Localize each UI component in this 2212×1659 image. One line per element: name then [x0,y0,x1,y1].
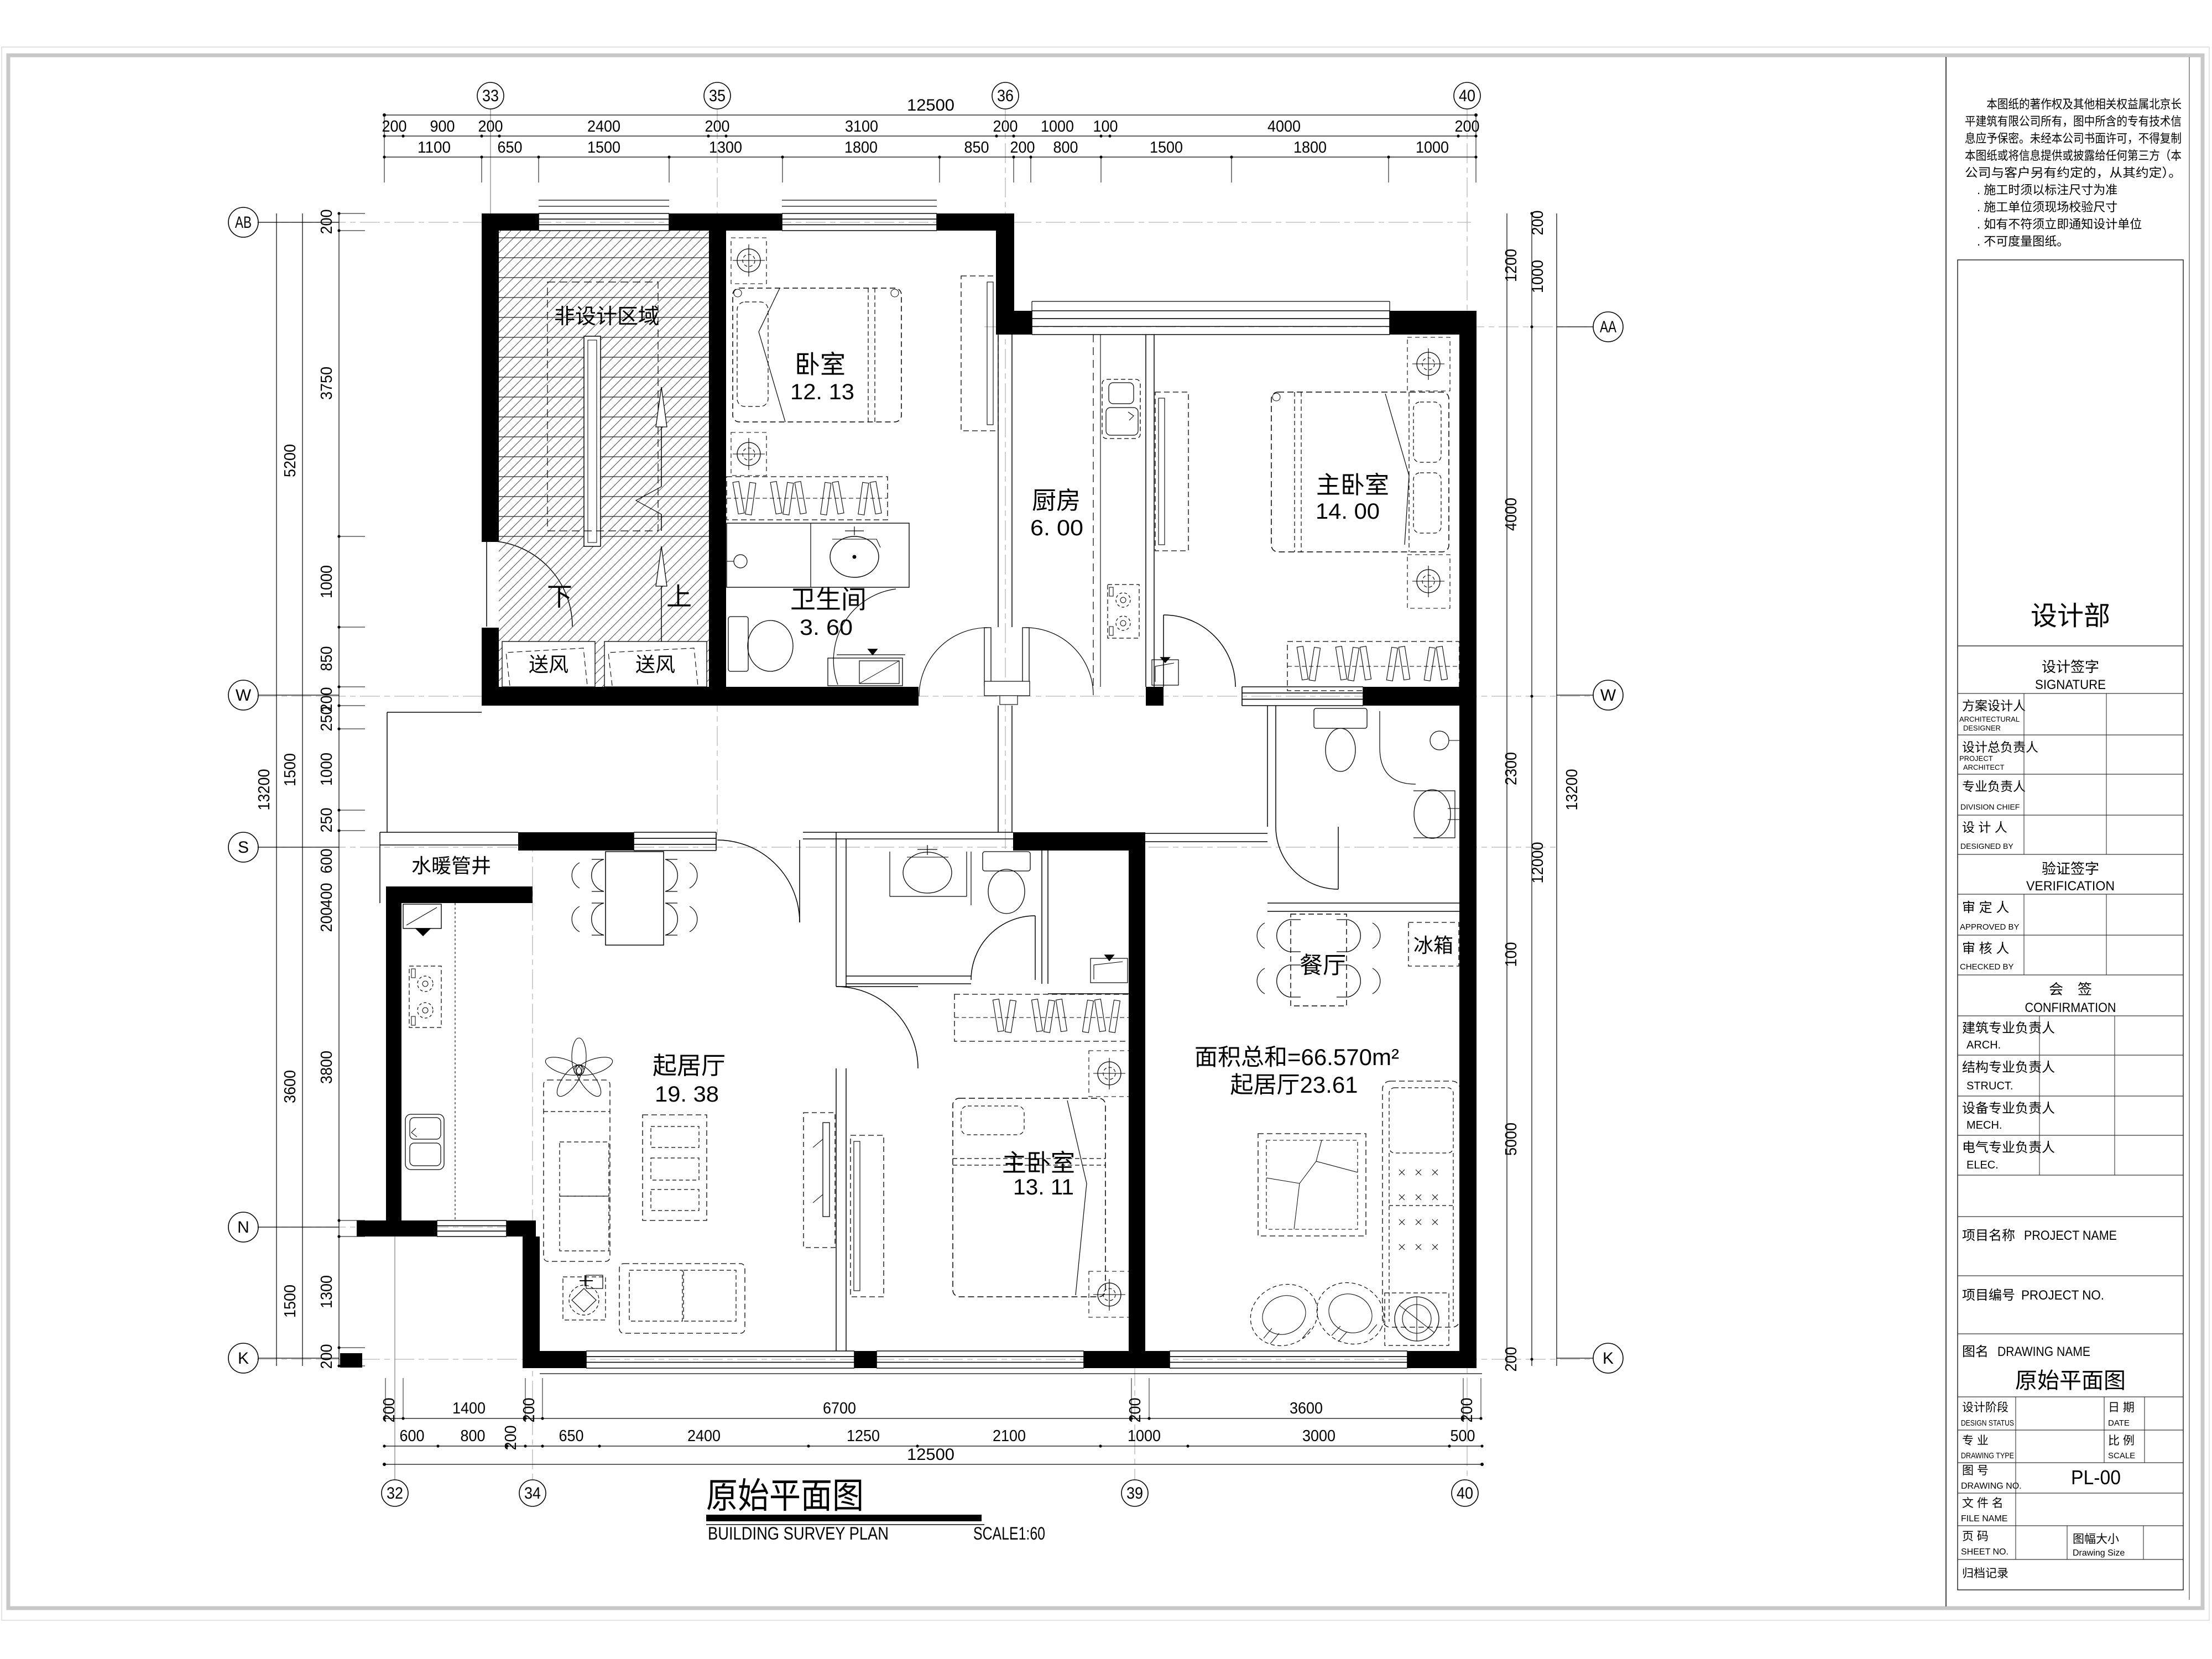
svg-text:主卧室: 主卧室 [1002,1150,1075,1177]
svg-text:. 不可度量图纸。: . 不可度量图纸。 [1965,234,2069,248]
svg-text:5000: 5000 [1503,1123,1520,1156]
svg-text:设备专业负责人: 设备专业负责人 [1962,1101,2055,1116]
svg-text:600: 600 [318,849,336,874]
svg-text:STRUCT.: STRUCT. [1966,1080,2013,1092]
svg-text:APPROVED BY: APPROVED BY [1960,922,2020,932]
svg-text:ARCHITECT: ARCHITECT [1963,763,2004,771]
svg-text:400: 400 [318,883,336,908]
svg-text:200: 200 [478,118,503,135]
svg-text:专业负责人: 专业负责人 [1962,779,2026,794]
svg-text:设计部: 设计部 [2031,602,2110,631]
svg-text:CHECKED BY: CHECKED BY [1960,962,2014,972]
svg-text:650: 650 [559,1427,584,1445]
svg-text:本图纸的著作权及其他相关权益属北京长: 本图纸的著作权及其他相关权益属北京长 [1965,97,2182,111]
svg-text:建筑专业负责人: 建筑专业负责人 [1962,1021,2055,1036]
svg-text:原始平面图: 原始平面图 [2015,1369,2126,1393]
svg-text:送风: 送风 [635,653,675,676]
svg-text:结构专业负责人: 结构专业负责人 [1962,1060,2055,1075]
svg-text:1800: 1800 [844,139,878,156]
svg-text:审 核 人: 审 核 人 [1962,941,2009,956]
svg-text:1200: 1200 [1503,249,1520,282]
svg-text:600: 600 [400,1427,425,1445]
svg-text:500: 500 [1451,1427,1475,1445]
svg-text:K: K [1603,1349,1614,1368]
svg-text:36: 36 [997,87,1014,105]
svg-text:设 计 人: 设 计 人 [1962,820,2007,834]
svg-text:电气专业负责人: 电气专业负责人 [1962,1140,2055,1155]
svg-text:餐厅: 餐厅 [1300,952,1346,978]
svg-text:200: 200 [318,907,336,932]
svg-text:送风: 送风 [529,653,568,676]
svg-text:200: 200 [1010,139,1035,156]
svg-text:800: 800 [1053,139,1078,156]
svg-text:W: W [1600,686,1616,705]
svg-text:K: K [238,1349,249,1368]
svg-text:原始平面图: 原始平面图 [706,1476,864,1516]
svg-text:项目名称: 项目名称 [1962,1228,2015,1243]
svg-text:方案设计人: 方案设计人 [1962,698,2026,713]
svg-text:N: N [237,1218,249,1237]
svg-text:2400: 2400 [687,1427,721,1445]
svg-text:2100: 2100 [993,1427,1026,1445]
svg-text:40: 40 [1457,1484,1473,1503]
svg-text:1100: 1100 [418,139,451,156]
svg-text:12. 13: 12. 13 [790,380,854,404]
svg-text:6. 00: 6. 00 [1030,516,1083,540]
svg-text:设计签字: 设计签字 [2042,659,2099,675]
svg-text:5200: 5200 [281,444,299,477]
svg-text:平建筑有限公司所有，图中所含的专有技术信: 平建筑有限公司所有，图中所含的专有技术信 [1965,114,2182,128]
svg-text:200: 200 [705,118,730,135]
svg-text:3800: 3800 [318,1051,336,1084]
svg-text:1000: 1000 [1529,260,1547,293]
svg-text:面积总和=66.570m²: 面积总和=66.570m² [1194,1044,1399,1070]
svg-text:200: 200 [380,1398,398,1423]
svg-text:MECH.: MECH. [1966,1119,2002,1131]
svg-text:850: 850 [964,139,989,156]
svg-text:800: 800 [461,1427,486,1445]
svg-text:图 号: 图 号 [1962,1464,1989,1477]
svg-text:12500: 12500 [907,1446,954,1464]
svg-text:12500: 12500 [907,96,954,114]
svg-text:AB: AB [235,213,252,232]
svg-text:6700: 6700 [823,1400,856,1417]
svg-text:13. 11: 13. 11 [1013,1175,1074,1199]
svg-text:归档记录: 归档记录 [1962,1567,2008,1580]
svg-text:SCALE: SCALE [2108,1451,2135,1460]
svg-text:100: 100 [1503,942,1520,967]
svg-text:13200: 13200 [1563,769,1581,811]
svg-text:1300: 1300 [318,1275,336,1308]
svg-text:1000: 1000 [318,565,336,598]
svg-text:200: 200 [502,1426,520,1451]
svg-text:ARCH.: ARCH. [1966,1039,2001,1051]
svg-text:DRAWING NAME: DRAWING NAME [1997,1344,2090,1359]
svg-text:页 码: 页 码 [1962,1530,1989,1543]
svg-text:1400: 1400 [452,1400,486,1417]
svg-text:200: 200 [382,118,407,135]
svg-text:SHEET NO.: SHEET NO. [1961,1547,2008,1557]
svg-text:卫生间: 卫生间 [790,585,867,614]
svg-text:40: 40 [1459,87,1475,105]
svg-text:13200: 13200 [255,769,273,811]
svg-text:SCALE1:60: SCALE1:60 [973,1524,1045,1543]
svg-text:250: 250 [318,808,336,833]
svg-text:图幅大小: 图幅大小 [2073,1533,2119,1546]
svg-text:3. 60: 3. 60 [800,615,853,640]
svg-text:1000: 1000 [1041,118,1074,135]
svg-text:DESIGNER: DESIGNER [1963,724,2001,732]
svg-text:主卧室: 主卧室 [1316,472,1389,499]
svg-text:PL-00: PL-00 [2071,1466,2121,1489]
svg-text:. 施工单位须现场校验尺寸: . 施工单位须现场校验尺寸 [1965,200,2117,214]
svg-text:200: 200 [1503,1347,1520,1372]
svg-text:SIGNATURE: SIGNATURE [2035,677,2106,692]
svg-text:2400: 2400 [587,118,620,135]
svg-text:1500: 1500 [587,139,620,156]
svg-text:200: 200 [318,1344,336,1369]
svg-text:S: S [238,838,249,857]
svg-text:项目编号: 项目编号 [1962,1288,2015,1303]
svg-text:650: 650 [498,139,523,156]
svg-text:DRAWING TYPE: DRAWING TYPE [1961,1451,2014,1460]
svg-text:水暖管井: 水暖管井 [411,854,491,877]
svg-text:4000: 4000 [1503,498,1520,531]
svg-text:32: 32 [387,1484,403,1503]
svg-text:1300: 1300 [709,139,742,156]
svg-text:3000: 3000 [1302,1427,1335,1445]
svg-text:起居厅: 起居厅 [653,1052,726,1079]
svg-text:非设计区域: 非设计区域 [554,305,659,328]
svg-text:200: 200 [318,210,336,234]
svg-text:34: 34 [524,1484,541,1503]
svg-text:850: 850 [318,646,336,671]
svg-text:1500: 1500 [1150,139,1183,156]
svg-text:W: W [236,686,252,705]
svg-text:审 定 人: 审 定 人 [1962,900,2009,915]
svg-text:冰箱: 冰箱 [1413,934,1453,957]
svg-text:1000: 1000 [1416,139,1449,156]
svg-text:BUILDING SURVEY PLAN: BUILDING SURVEY PLAN [708,1524,889,1543]
svg-text:1500: 1500 [281,753,299,786]
svg-text:1000: 1000 [1128,1427,1161,1445]
svg-text:3600: 3600 [281,1070,299,1103]
svg-text:ELEC.: ELEC. [1966,1159,1999,1171]
svg-text:比 例: 比 例 [2108,1434,2135,1447]
svg-text:900: 900 [430,118,455,135]
svg-text:专 业: 专 业 [1962,1434,1989,1447]
svg-text:1000: 1000 [318,753,336,786]
svg-text:DRAWING NO.: DRAWING NO. [1961,1481,2022,1491]
svg-text:设计阶段: 设计阶段 [1962,1401,2008,1414]
svg-text:ARCHITECTURAL: ARCHITECTURAL [1959,715,2020,723]
svg-text:本图纸或将信息提供或披露给任何第三方（本: 本图纸或将信息提供或披露给任何第三方（本 [1965,149,2182,163]
svg-text:200: 200 [1458,1398,1476,1423]
svg-text:PROJECT NAME: PROJECT NAME [2024,1228,2117,1243]
svg-text:会 签: 会 签 [2049,981,2092,998]
svg-text:日 期: 日 期 [2108,1401,2135,1414]
svg-text:FILE NAME: FILE NAME [1961,1514,2007,1524]
svg-text:PROJECT: PROJECT [1959,754,1993,763]
svg-text:DESIGNED BY: DESIGNED BY [1960,842,2013,851]
svg-text:250: 250 [318,707,336,732]
svg-text:起居厅23.61: 起居厅23.61 [1230,1072,1358,1098]
svg-text:1800: 1800 [1293,139,1327,156]
svg-text:PROJECT NO.: PROJECT NO. [2021,1288,2104,1303]
svg-text:3100: 3100 [845,118,878,135]
svg-text:CONFIRMATION: CONFIRMATION [2025,1000,2116,1015]
svg-text:下: 下 [547,582,572,611]
svg-text:AA: AA [1600,318,1616,336]
svg-text:19. 38: 19. 38 [655,1082,719,1107]
svg-text:35: 35 [709,87,726,105]
svg-text:200: 200 [993,118,1018,135]
svg-text:息应予保密。未经本公司书面许可，不得复制: 息应予保密。未经本公司书面许可，不得复制 [1965,132,2182,145]
svg-text:Drawing Size: Drawing Size [2073,1548,2125,1558]
svg-text:4000: 4000 [1267,118,1301,135]
svg-text:公司与客户另有约定的，从其约定）。: 公司与客户另有约定的，从其约定）。 [1965,166,2182,180]
svg-text:DATE: DATE [2108,1418,2130,1428]
svg-text:验证签字: 验证签字 [2042,860,2099,877]
svg-text:DESIGN STATUS: DESIGN STATUS [1961,1418,2014,1428]
svg-text:VERIFICATION: VERIFICATION [2026,879,2115,894]
svg-text:卧室: 卧室 [795,350,846,379]
svg-text:12000: 12000 [1529,842,1547,884]
svg-text:设计总负责人: 设计总负责人 [1962,740,2038,754]
svg-text:14. 00: 14. 00 [1316,499,1380,524]
svg-text:. 如有不符须立即通知设计单位: . 如有不符须立即通知设计单位 [1965,217,2142,231]
svg-text:. 施工时须以标注尺寸为准: . 施工时须以标注尺寸为准 [1965,183,2117,197]
svg-text:DIVISION CHIEF: DIVISION CHIEF [1960,802,2020,811]
svg-text:1500: 1500 [281,1285,299,1318]
svg-text:文 件 名: 文 件 名 [1962,1497,2004,1510]
svg-text:200: 200 [1126,1398,1144,1423]
svg-text:3750: 3750 [318,367,336,400]
svg-text:200: 200 [520,1398,538,1423]
svg-text:3600: 3600 [1290,1400,1323,1417]
svg-text:上: 上 [666,582,692,611]
svg-text:1250: 1250 [847,1427,880,1445]
svg-text:2300: 2300 [1503,752,1520,785]
svg-text:33: 33 [482,87,499,105]
svg-text:图名: 图名 [1962,1344,1989,1359]
svg-text:100: 100 [1093,118,1118,135]
svg-text:39: 39 [1126,1484,1143,1503]
svg-text:厨房: 厨房 [1032,487,1081,514]
